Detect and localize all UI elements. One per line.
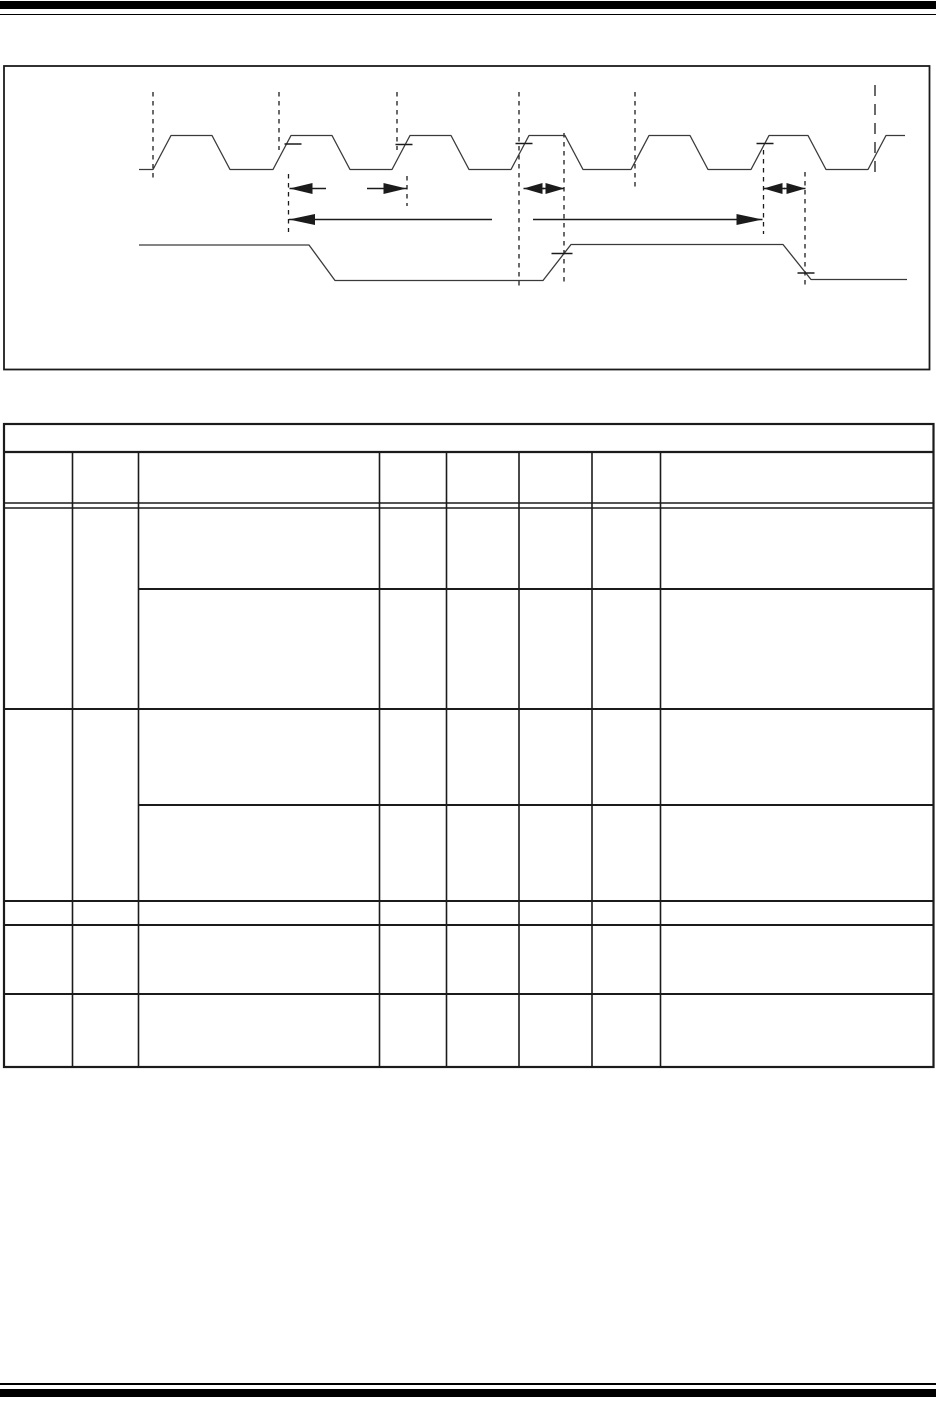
table-grid-canvas: [0, 400, 936, 1100]
table-row-lines: [4, 452, 934, 994]
timing-diagram-canvas: [0, 0, 936, 400]
clock-high-width-dimension: [524, 183, 565, 194]
clock-to-data-dimension: [764, 183, 806, 194]
bottom-rule-thin: [0, 1383, 936, 1385]
clock-period-dimension: [290, 183, 407, 194]
data-signal-waveform: [139, 245, 907, 281]
edge-crossing-ticks: [285, 144, 815, 274]
figure-border: [4, 66, 930, 370]
dimension-arrows: [289, 183, 806, 225]
data-valid-span-dimension: [289, 214, 763, 225]
clock-edge-guides: [153, 85, 875, 288]
table-column-lines: [73, 452, 661, 1067]
datasheet-page: [0, 0, 936, 1412]
table-outer-border: [4, 424, 934, 1067]
clock-waveform: [139, 136, 905, 170]
bottom-rule-thick: [0, 1389, 936, 1397]
